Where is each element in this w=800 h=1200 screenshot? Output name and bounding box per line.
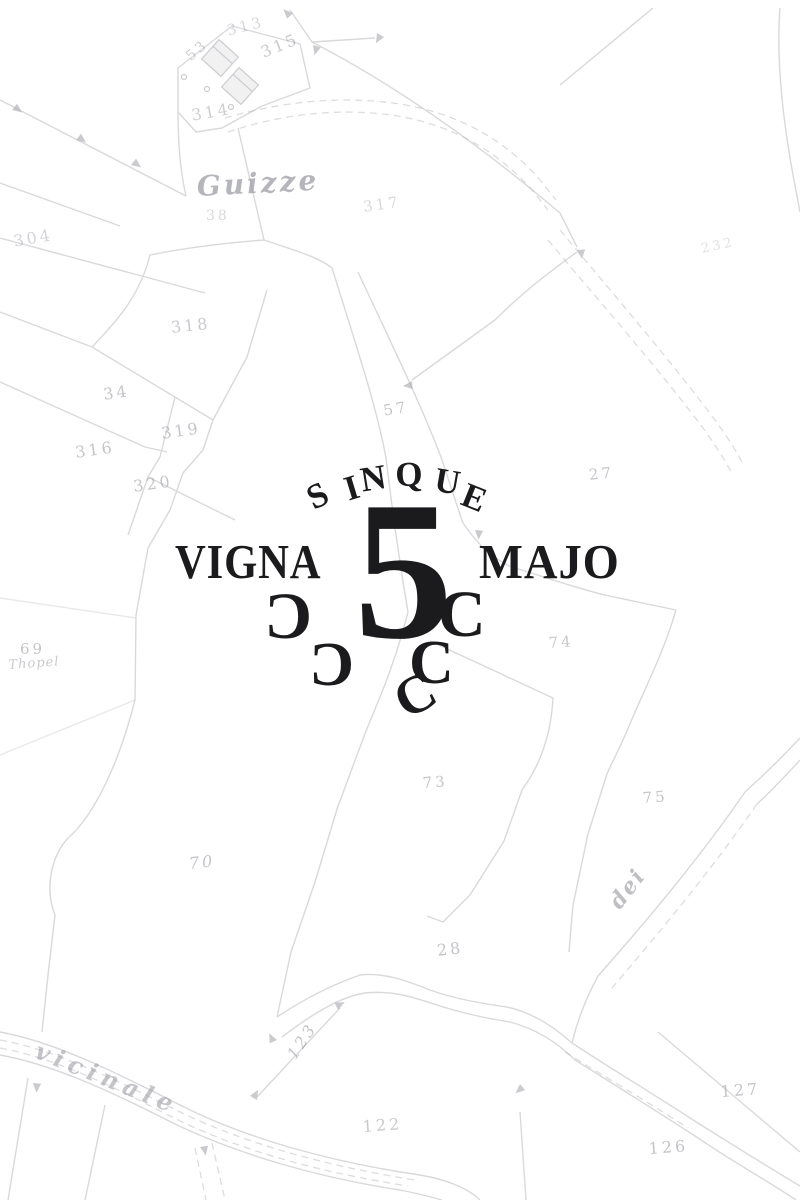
parcel-label-73: 73 bbox=[422, 772, 448, 792]
parcel-label-127: 127 bbox=[720, 1079, 761, 1101]
parcel-label-38: 38 bbox=[206, 208, 230, 224]
parcel-label-74: 74 bbox=[548, 632, 574, 652]
parcel-label-122: 122 bbox=[362, 1114, 403, 1136]
parcel-label-70: 70 bbox=[188, 851, 216, 873]
parcel-label-126: 126 bbox=[648, 1136, 689, 1158]
map-stage: 313 53 315 314 Guizze 38 317 304 318 34 … bbox=[0, 0, 800, 1200]
parcel-label-34: 34 bbox=[102, 381, 131, 403]
grape-c-icon: C bbox=[264, 584, 312, 650]
logo-word-majo: MAJO bbox=[479, 537, 620, 586]
grape-c-icon: C bbox=[309, 634, 354, 696]
parcel-label-28: 28 bbox=[436, 938, 464, 960]
parcel-label-75: 75 bbox=[642, 787, 668, 807]
place-label-guizze: Guizze bbox=[196, 164, 320, 203]
logo-word-vigna: VIGNA bbox=[175, 537, 321, 586]
parcel-label-27: 27 bbox=[588, 463, 615, 484]
